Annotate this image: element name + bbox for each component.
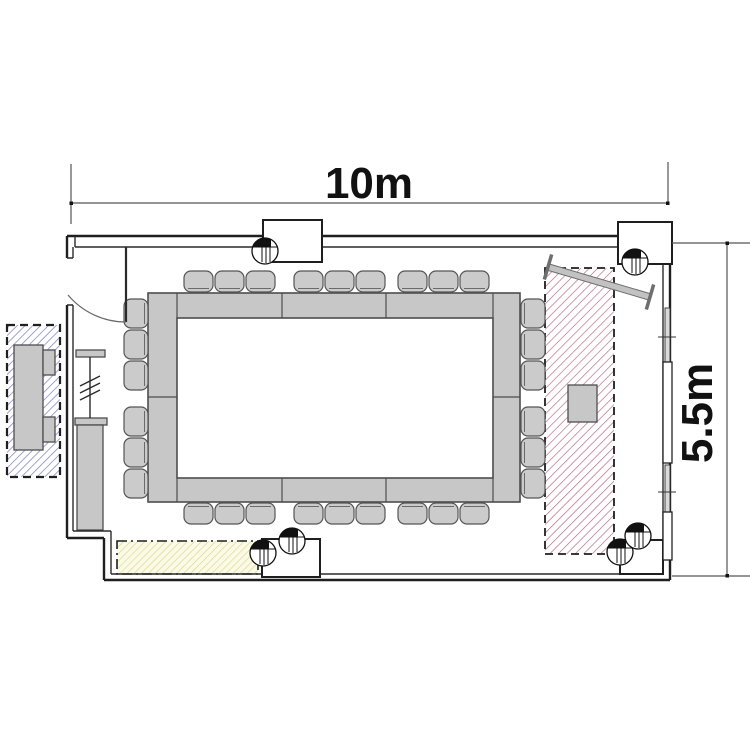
chair [521, 330, 545, 359]
chair [294, 503, 323, 524]
chair [294, 271, 323, 292]
chair [521, 438, 545, 467]
floor-plan-drawing: 10m 5.5m [0, 0, 750, 750]
window-pane [663, 512, 672, 560]
column-symbol [279, 528, 305, 554]
table-inner-opening [177, 318, 493, 478]
cabinet-knob [43, 350, 55, 375]
partition-rail-bottom [75, 418, 107, 425]
chair [429, 503, 458, 524]
chair [398, 503, 427, 524]
chair [356, 503, 385, 524]
wall-pillar [77, 425, 103, 530]
chair [184, 271, 213, 292]
chair [124, 361, 148, 390]
chair [215, 503, 244, 524]
chair [124, 299, 148, 328]
entrance-door [68, 247, 126, 322]
chair [521, 361, 545, 390]
chair [184, 503, 213, 524]
dimension-end-marker [666, 202, 670, 206]
window-pane [663, 362, 672, 463]
chair [521, 469, 545, 498]
width-dimension-label: 10m [325, 159, 413, 208]
cabinet-body [14, 345, 43, 450]
chair [460, 271, 489, 292]
chair [325, 271, 354, 292]
dimension-right: 5.5m [672, 242, 750, 578]
chair [246, 503, 275, 524]
chair [215, 271, 244, 292]
column-symbol [250, 540, 276, 566]
chair [325, 503, 354, 524]
chair [356, 271, 385, 292]
column-symbol [625, 523, 651, 549]
lectern [568, 385, 597, 422]
window-mullion [665, 465, 670, 512]
door-swing-arc [68, 295, 126, 322]
chair [398, 271, 427, 292]
chair [429, 271, 458, 292]
dimension-end-marker [726, 242, 730, 246]
dimension-top: 10m [70, 159, 670, 224]
chair [246, 271, 275, 292]
partition-track [80, 357, 100, 418]
chair [124, 330, 148, 359]
conference-table [148, 293, 520, 502]
chair [124, 407, 148, 436]
window-mullion [665, 308, 670, 362]
height-dimension-label: 5.5m [673, 363, 722, 463]
chair [521, 299, 545, 328]
chair [124, 469, 148, 498]
hatched-zone-yellow [117, 541, 258, 574]
floor-plan-canvas: 10m 5.5m [0, 0, 750, 750]
chair [521, 407, 545, 436]
dimension-end-marker [726, 574, 730, 578]
cabinet-knob [43, 417, 55, 442]
column-symbol [622, 249, 648, 275]
column-symbol [252, 238, 278, 264]
partition-rail-top [76, 350, 105, 357]
chair [460, 503, 489, 524]
chair [124, 438, 148, 467]
dimension-end-marker [70, 202, 74, 206]
